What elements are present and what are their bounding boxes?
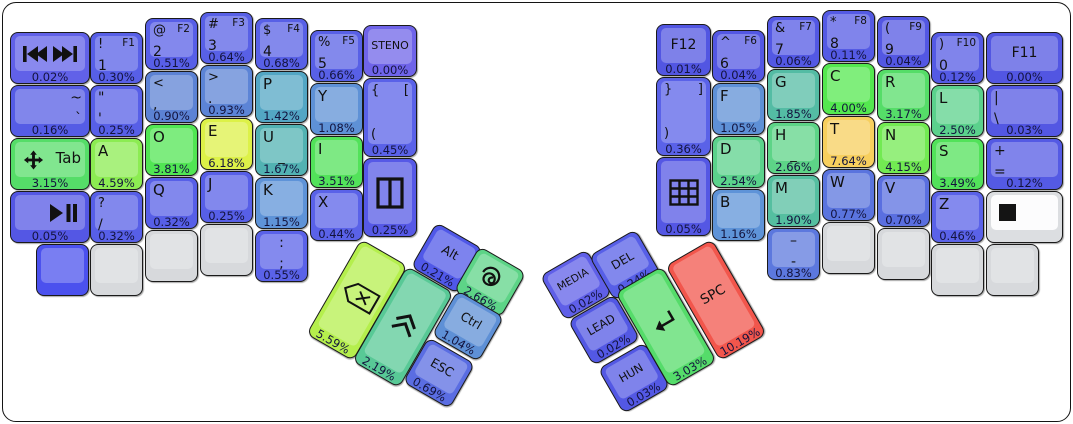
- keycap: [205, 228, 248, 263]
- key-legend: P: [263, 77, 272, 92]
- key-d[interactable]: D2.54%: [712, 136, 765, 188]
- key-y[interactable]: Y1.08%: [310, 83, 363, 135]
- key-legend: F7: [799, 22, 812, 33]
- key-usage-percent: 1.15%: [256, 216, 307, 228]
- key-usage-percent: 2.50%: [932, 124, 983, 136]
- key-usage-percent: 0.05%: [657, 223, 710, 235]
- key-usage-percent: 0.25%: [91, 124, 142, 136]
- key-legend: C: [830, 69, 840, 84]
- key-u[interactable]: U_1.67%: [255, 124, 308, 176]
- key-f11[interactable]: F110.00%: [986, 32, 1063, 84]
- key-usage-percent: 0.45%: [364, 144, 416, 156]
- key-legend: F2: [177, 24, 190, 35]
- key-usage-percent: 1.67%: [256, 163, 307, 175]
- move-icon: [15, 142, 85, 177]
- key-usage-percent: 0.83%: [768, 267, 819, 279]
- key-legend: (: [371, 128, 376, 141]
- key-usage-percent: 0.16%: [11, 124, 89, 136]
- key-legend: B: [720, 195, 730, 210]
- key-legend: K: [263, 183, 273, 198]
- key-usage-percent: 7.64%: [823, 155, 874, 167]
- key-grid[interactable]: 0.05%: [656, 157, 711, 236]
- key-legend: A: [98, 144, 108, 159]
- key-usage-percent: 0.90%: [146, 110, 197, 122]
- key-media-prev-next[interactable]: 0.02%: [10, 32, 90, 84]
- key-usage-percent: 0.00%: [987, 71, 1062, 83]
- key-m[interactable]: M1.90%: [767, 175, 820, 227]
- key-legend: G: [775, 75, 787, 90]
- key-usage-percent: 2.54%: [713, 175, 764, 187]
- key-0-f10[interactable]: )F1000.12%: [931, 32, 984, 84]
- key-plus-equals[interactable]: +=0.12%: [986, 138, 1063, 190]
- key-legend: –: [768, 234, 819, 248]
- key-usage-percent: 0.12%: [932, 71, 983, 83]
- key-2-f2[interactable]: @F220.51%: [145, 18, 198, 70]
- key-usage-percent: 3.17%: [878, 108, 929, 120]
- key-unused-r1[interactable]: [822, 222, 875, 274]
- key-endash-hyphen[interactable]: –-0.83%: [767, 228, 820, 280]
- key-legend: ": [98, 91, 104, 105]
- key-usage-percent: 0.03%: [987, 124, 1062, 136]
- key-usage-percent: 0.25%: [201, 210, 252, 222]
- key-blank-blue[interactable]: [36, 244, 89, 296]
- key-w[interactable]: W0.77%: [822, 169, 875, 221]
- key-usage-percent: 3.15%: [11, 177, 89, 189]
- key-play-pause[interactable]: 0.05%: [10, 191, 90, 243]
- key-legend: Y: [318, 89, 327, 104]
- keycap: [991, 248, 1034, 283]
- key-legend: I: [318, 142, 322, 157]
- key-tilde-backtick[interactable]: ~`0.16%: [10, 85, 90, 137]
- key-4-f4[interactable]: $F440.68%: [255, 18, 308, 70]
- key-legend: N: [885, 128, 896, 143]
- key-legend: F5: [342, 36, 355, 47]
- key-usage-percent: 0.00%: [364, 64, 416, 76]
- key-legend: STENO: [364, 26, 416, 65]
- key-s[interactable]: S3.49%: [931, 138, 984, 190]
- key-usage-percent: 0.77%: [823, 208, 874, 220]
- key-h[interactable]: H_2.66%: [767, 122, 820, 174]
- key-1-f1[interactable]: !F110.30%: [90, 32, 143, 84]
- key-legend: [: [404, 84, 409, 97]
- key-unused-l3[interactable]: [200, 224, 253, 276]
- key-usage-percent: 0.46%: [932, 230, 983, 242]
- key-k[interactable]: K1.15%: [255, 177, 308, 229]
- key-doublequote-apostrophe[interactable]: "'0.25%: [90, 85, 143, 137]
- key-usage-percent: 0.32%: [91, 230, 142, 242]
- key-usage-percent: 0.64%: [201, 51, 252, 63]
- key-legend: X: [318, 195, 328, 210]
- key-f[interactable]: F1.05%: [712, 83, 765, 135]
- key-x[interactable]: X0.44%: [310, 189, 363, 241]
- key-usage-percent: 0.44%: [311, 228, 362, 240]
- key-usage-percent: 1.90%: [768, 214, 819, 226]
- key-usage-percent: 0.06%: [768, 55, 819, 67]
- key-usage-percent: 4.00%: [823, 102, 874, 114]
- key-lessthan-comma[interactable]: <,0.90%: [145, 71, 198, 123]
- key-i[interactable]: I3.51%: [310, 136, 363, 188]
- key-a[interactable]: A4.59%: [90, 138, 143, 190]
- key-question-slash[interactable]: ?/0.32%: [90, 191, 143, 243]
- key-l[interactable]: L2.50%: [931, 85, 984, 137]
- key-usage-percent: 4.15%: [878, 161, 929, 173]
- key-z[interactable]: Z0.46%: [931, 191, 984, 243]
- key-6-f6[interactable]: ^F660.04%: [712, 30, 765, 82]
- key-legend: #: [208, 18, 219, 31]
- play-pause-icon: [15, 195, 85, 230]
- key-legend: ?: [98, 197, 105, 210]
- key-legend: W: [830, 175, 845, 190]
- key-legend: M: [775, 181, 788, 196]
- key-legend: {: [371, 84, 379, 97]
- key-legend: S: [939, 144, 949, 159]
- keycap: [150, 234, 193, 269]
- key-split-pane[interactable]: 0.25%: [363, 158, 417, 237]
- keycap: [936, 248, 979, 283]
- key-legend: U: [263, 130, 274, 145]
- key-v[interactable]: V0.70%: [877, 175, 930, 227]
- key-legend: (: [885, 22, 890, 35]
- key-5-f5[interactable]: %F550.66%: [310, 30, 363, 82]
- key-legend: <: [153, 77, 164, 90]
- key-usage-percent: 0.11%: [823, 49, 874, 61]
- key-legend: $: [263, 24, 271, 37]
- key-r[interactable]: R3.17%: [877, 69, 930, 121]
- key-legend: F11: [987, 33, 1062, 72]
- key-3-f3[interactable]: #F330.64%: [200, 12, 253, 64]
- key-legend: :: [256, 236, 307, 250]
- key-unused-r2[interactable]: [877, 228, 930, 280]
- key-unused-l1[interactable]: [90, 244, 143, 296]
- key-legend: H: [775, 128, 786, 143]
- key-legend: F1: [122, 38, 135, 49]
- key-9-f9[interactable]: (F990.04%: [877, 16, 930, 68]
- key-legend: R: [885, 75, 895, 90]
- key-j[interactable]: J0.25%: [200, 171, 253, 223]
- key-legend: F12: [657, 25, 710, 64]
- key-usage-percent: 1.05%: [713, 122, 764, 134]
- keycap: [827, 226, 870, 261]
- key-legend: ]: [698, 83, 703, 96]
- split-pane-icon: [368, 162, 412, 224]
- key-legend: Z: [939, 197, 949, 212]
- key-lbrace-lbracket-lparen[interactable]: {[(0.45%: [363, 78, 417, 157]
- key-usage-percent: 0.04%: [713, 69, 764, 81]
- key-legend: F4: [287, 24, 300, 35]
- key-unused-l2[interactable]: [145, 230, 198, 282]
- key-legend: &: [775, 22, 785, 35]
- grid-icon: [661, 161, 706, 223]
- key-legend: V: [885, 181, 895, 196]
- key-legend: *: [830, 16, 837, 29]
- key-legend: F6: [744, 36, 757, 47]
- key-legend: }: [664, 83, 672, 96]
- key-legend: Q: [153, 183, 165, 198]
- key-legend: L: [939, 91, 947, 106]
- key-c[interactable]: C4.00%: [822, 63, 875, 115]
- key-legend: F9: [909, 22, 922, 33]
- key-o[interactable]: O3.81%: [145, 124, 198, 176]
- key-usage-percent: 0.93%: [201, 104, 252, 116]
- keycap: [95, 248, 138, 283]
- key-b[interactable]: B1.16%: [712, 189, 765, 241]
- key-greaterthan-period[interactable]: >.0.93%: [200, 65, 253, 117]
- key-usage-percent: 0.01%: [657, 63, 710, 75]
- key-t[interactable]: T7.64%: [822, 116, 875, 168]
- key-legend: !: [98, 38, 103, 51]
- key-boot-square[interactable]: [986, 191, 1063, 243]
- key-usage-percent: 0.30%: [91, 71, 142, 83]
- key-usage-percent: 1.85%: [768, 108, 819, 120]
- key-usage-percent: 0.68%: [256, 57, 307, 69]
- key-usage-percent: 2.66%: [768, 161, 819, 173]
- key-8-f8[interactable]: *F880.11%: [822, 10, 875, 62]
- key-usage-percent: 0.70%: [878, 214, 929, 226]
- keycap: [991, 89, 1058, 124]
- prev-next-track-icon: [15, 36, 85, 71]
- key-usage-percent: 0.32%: [146, 216, 197, 228]
- key-usage-percent: 1.42%: [256, 110, 307, 122]
- key-legend: |: [994, 91, 999, 105]
- key-n[interactable]: N4.15%: [877, 122, 930, 174]
- key-usage-percent: 0.12%: [987, 177, 1062, 189]
- key-q[interactable]: Q0.32%: [145, 177, 198, 229]
- key-legend: D: [720, 142, 732, 157]
- key-usage-percent: 0.04%: [878, 55, 929, 67]
- key-legend: ): [939, 38, 944, 51]
- key-usage-percent: 0.02%: [11, 71, 89, 83]
- key-colon-semicolon[interactable]: :;0.55%: [255, 230, 308, 282]
- keyboard: 0.02%~`0.16%Tab3.15%0.05%!F110.30%"'0.25…: [0, 0, 1073, 424]
- black-square-icon: [991, 195, 1058, 230]
- key-usage-percent: 0.36%: [657, 143, 710, 155]
- key-legend: %: [318, 36, 330, 49]
- key-legend: F: [720, 89, 729, 104]
- key-usage-percent: 0.05%: [11, 230, 89, 242]
- key-legend: J: [208, 177, 212, 192]
- key-usage-percent: 3.51%: [311, 175, 362, 187]
- key-legend: +: [994, 144, 1006, 158]
- key-usage-percent: 0.25%: [364, 224, 416, 236]
- key-legend: T: [830, 122, 839, 137]
- key-legend: F3: [232, 18, 245, 29]
- key-usage-percent: 0.51%: [146, 57, 197, 69]
- key-unused-r3[interactable]: [931, 244, 984, 296]
- key-e[interactable]: E6.18%: [200, 118, 253, 170]
- key-usage-percent: 0.66%: [311, 69, 362, 81]
- key-tab[interactable]: Tab3.15%: [10, 138, 90, 190]
- key-legend: O: [153, 130, 165, 145]
- key-legend: F10: [957, 38, 976, 49]
- key-usage-percent: 1.16%: [713, 228, 764, 240]
- key-unused-r4[interactable]: [986, 244, 1039, 296]
- key-legend: ): [664, 127, 669, 140]
- key-p[interactable]: P1.42%: [255, 71, 308, 123]
- key-usage-percent: 3.49%: [932, 177, 983, 189]
- key-pipe-backslash[interactable]: |\0.03%: [986, 85, 1063, 137]
- key-legend: >: [208, 71, 219, 84]
- key-steno[interactable]: STENO0.00%: [363, 25, 417, 77]
- key-legend: ~: [70, 91, 82, 105]
- key-rbrace-rbracket-rparen[interactable]: }])0.36%: [656, 77, 711, 156]
- key-legend: F8: [854, 16, 867, 27]
- key-usage-percent: 6.18%: [201, 157, 252, 169]
- keycap: [882, 232, 925, 267]
- key-f12[interactable]: F120.01%: [656, 24, 711, 76]
- key-usage-percent: 0.55%: [256, 269, 307, 281]
- key-usage-percent: 3.81%: [146, 163, 197, 175]
- key-legend: E: [208, 124, 217, 139]
- key-legend: ^: [720, 36, 731, 49]
- key-usage-percent: 4.59%: [91, 177, 142, 189]
- key-usage-percent: 1.08%: [311, 122, 362, 134]
- keycap: [41, 248, 84, 283]
- key-g[interactable]: G1.85%: [767, 69, 820, 121]
- key-legend: @: [153, 24, 166, 37]
- key-7-f7[interactable]: &F770.06%: [767, 16, 820, 68]
